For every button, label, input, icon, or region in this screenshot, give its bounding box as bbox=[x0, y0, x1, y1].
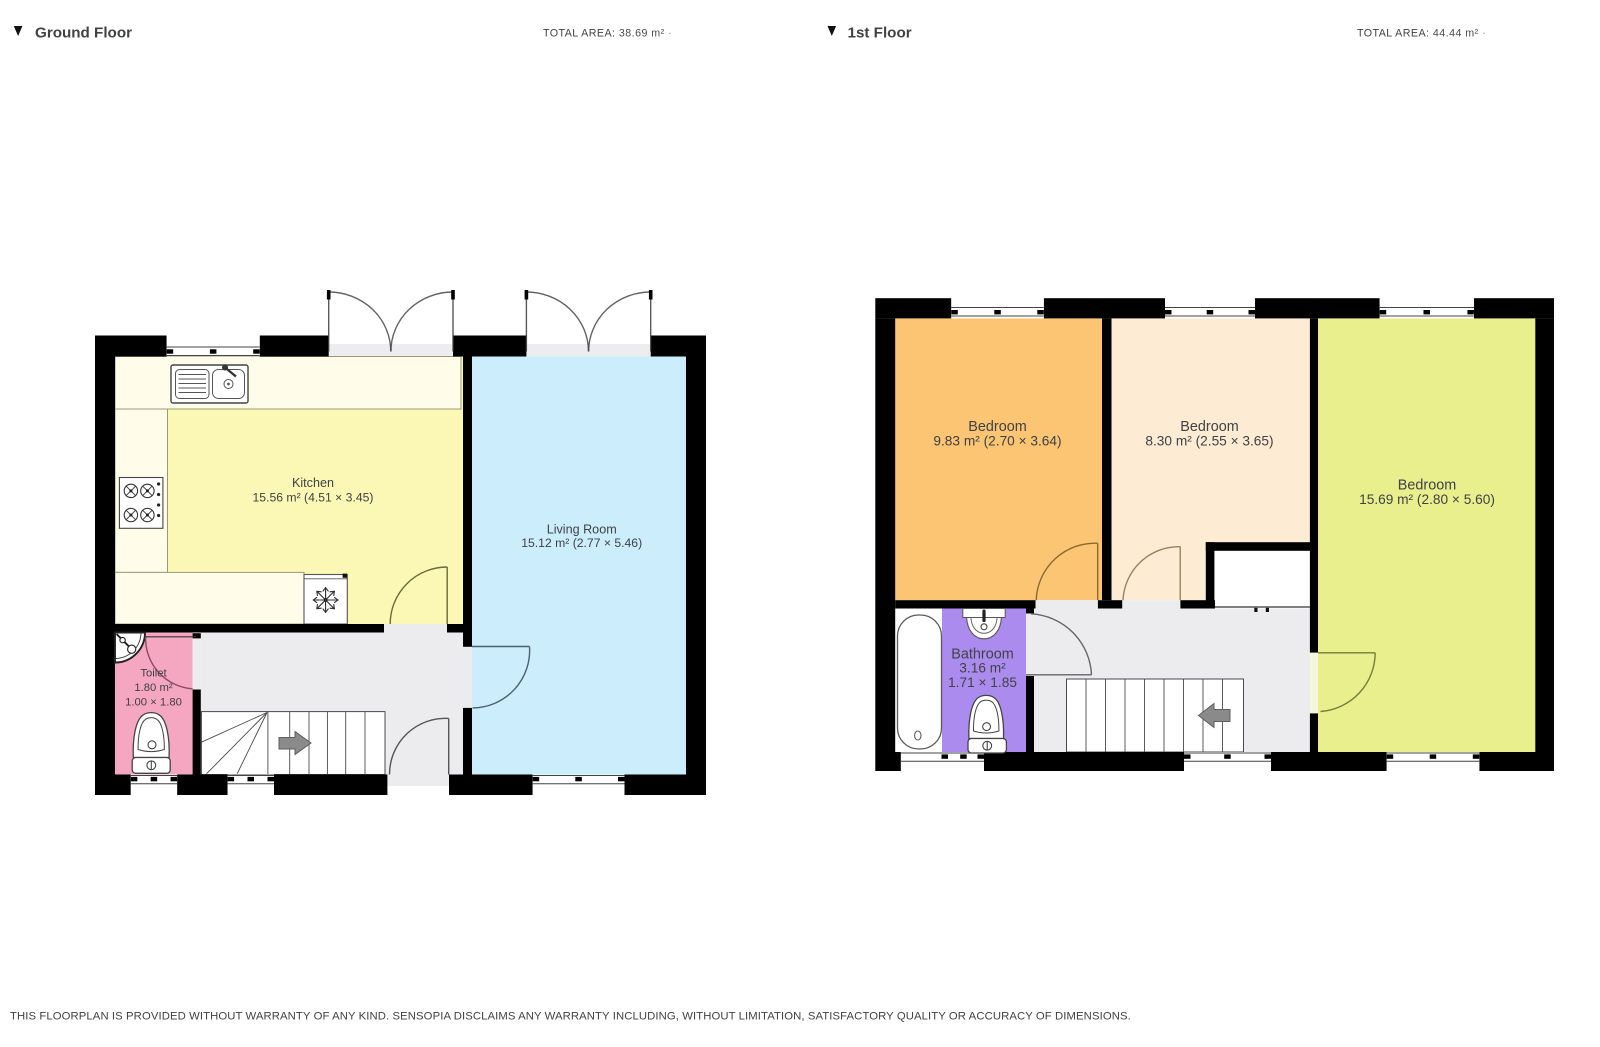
svg-text:1.71 × 1.85: 1.71 × 1.85 bbox=[948, 675, 1017, 690]
svg-text:TOTAL AREA: 38.69 m² ·: TOTAL AREA: 38.69 m² · bbox=[543, 27, 672, 39]
svg-text:15.69 m² (2.80 × 5.60): 15.69 m² (2.80 × 5.60) bbox=[1359, 492, 1495, 507]
svg-text:15.12 m² (2.77 × 5.46): 15.12 m² (2.77 × 5.46) bbox=[521, 536, 642, 550]
svg-text:1st Floor: 1st Floor bbox=[848, 25, 912, 42]
svg-text:THIS FLOORPLAN IS PROVIDED WIT: THIS FLOORPLAN IS PROVIDED WITHOUT WARRA… bbox=[10, 1011, 1131, 1023]
svg-text:Ground Floor: Ground Floor bbox=[35, 25, 132, 42]
svg-text:TOTAL AREA: 44.44 m² ·: TOTAL AREA: 44.44 m² · bbox=[1357, 27, 1486, 39]
svg-text:15.56 m² (4.51 × 3.45): 15.56 m² (4.51 × 3.45) bbox=[253, 491, 374, 505]
svg-text:Toilet: Toilet bbox=[140, 667, 167, 679]
svg-text:8.30 m² (2.55 × 3.65): 8.30 m² (2.55 × 3.65) bbox=[1145, 433, 1273, 448]
svg-text:9.83 m² (2.70 × 3.64): 9.83 m² (2.70 × 3.64) bbox=[933, 433, 1061, 448]
svg-text:Kitchen: Kitchen bbox=[292, 476, 334, 490]
svg-text:3.16 m²: 3.16 m² bbox=[959, 661, 1006, 676]
svg-text:Living Room: Living Room bbox=[547, 522, 617, 536]
svg-text:1.80 m²: 1.80 m² bbox=[134, 682, 173, 694]
svg-text:1.00 × 1.80: 1.00 × 1.80 bbox=[125, 696, 182, 708]
